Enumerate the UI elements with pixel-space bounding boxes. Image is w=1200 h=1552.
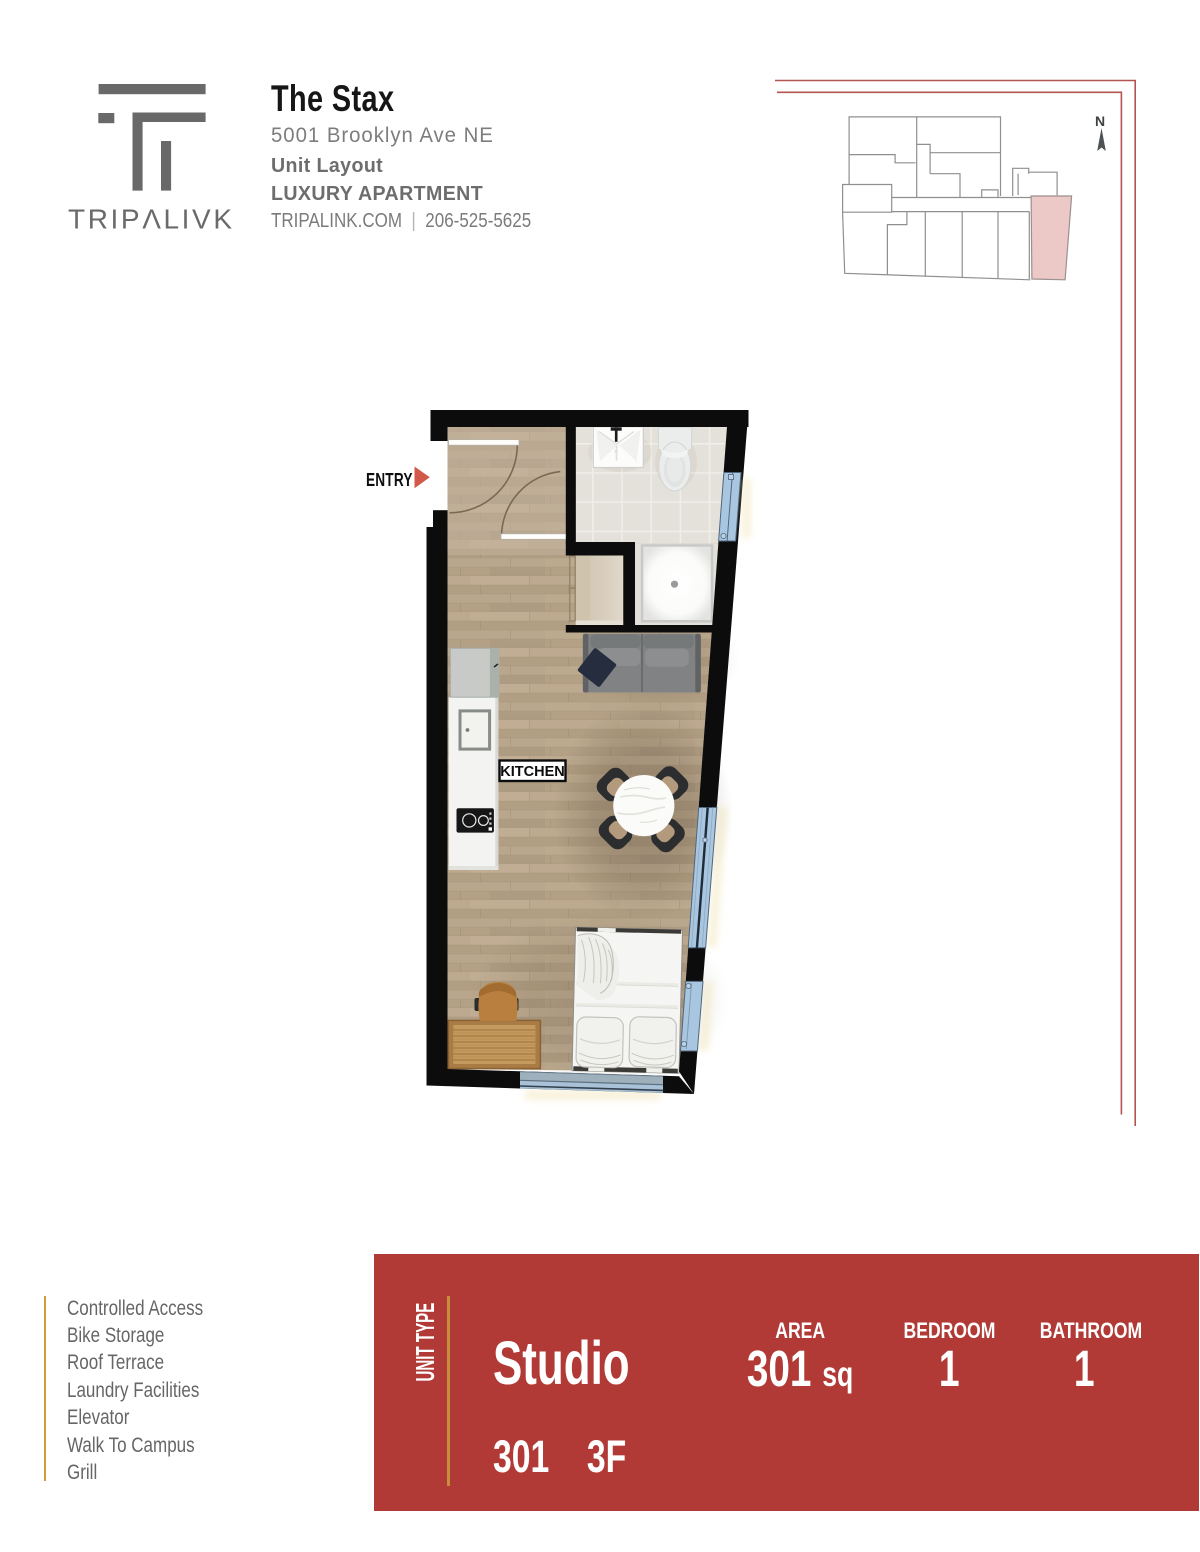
svg-text:KITCHEN: KITCHEN — [500, 764, 564, 780]
svg-text:TRIPΛLIVK: TRIPΛLIVK — [68, 204, 237, 235]
svg-text:N: N — [1095, 113, 1105, 129]
